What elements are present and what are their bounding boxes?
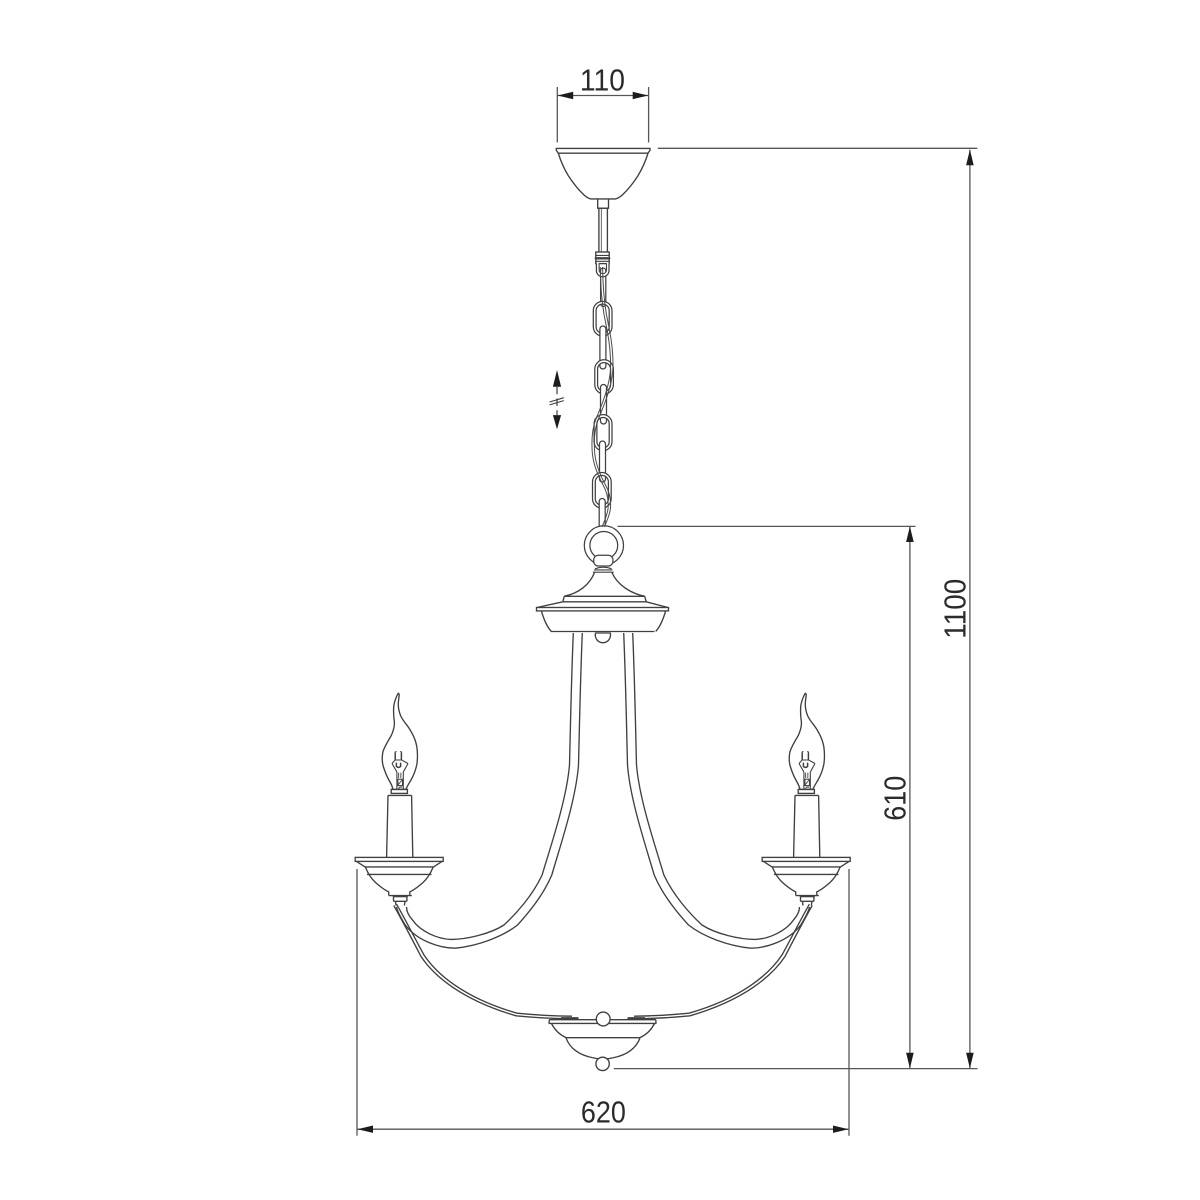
svg-text:620: 620 [581, 1095, 626, 1130]
svg-text:610: 610 [877, 776, 912, 821]
svg-text:110: 110 [580, 62, 625, 97]
svg-text:1100: 1100 [937, 579, 972, 639]
